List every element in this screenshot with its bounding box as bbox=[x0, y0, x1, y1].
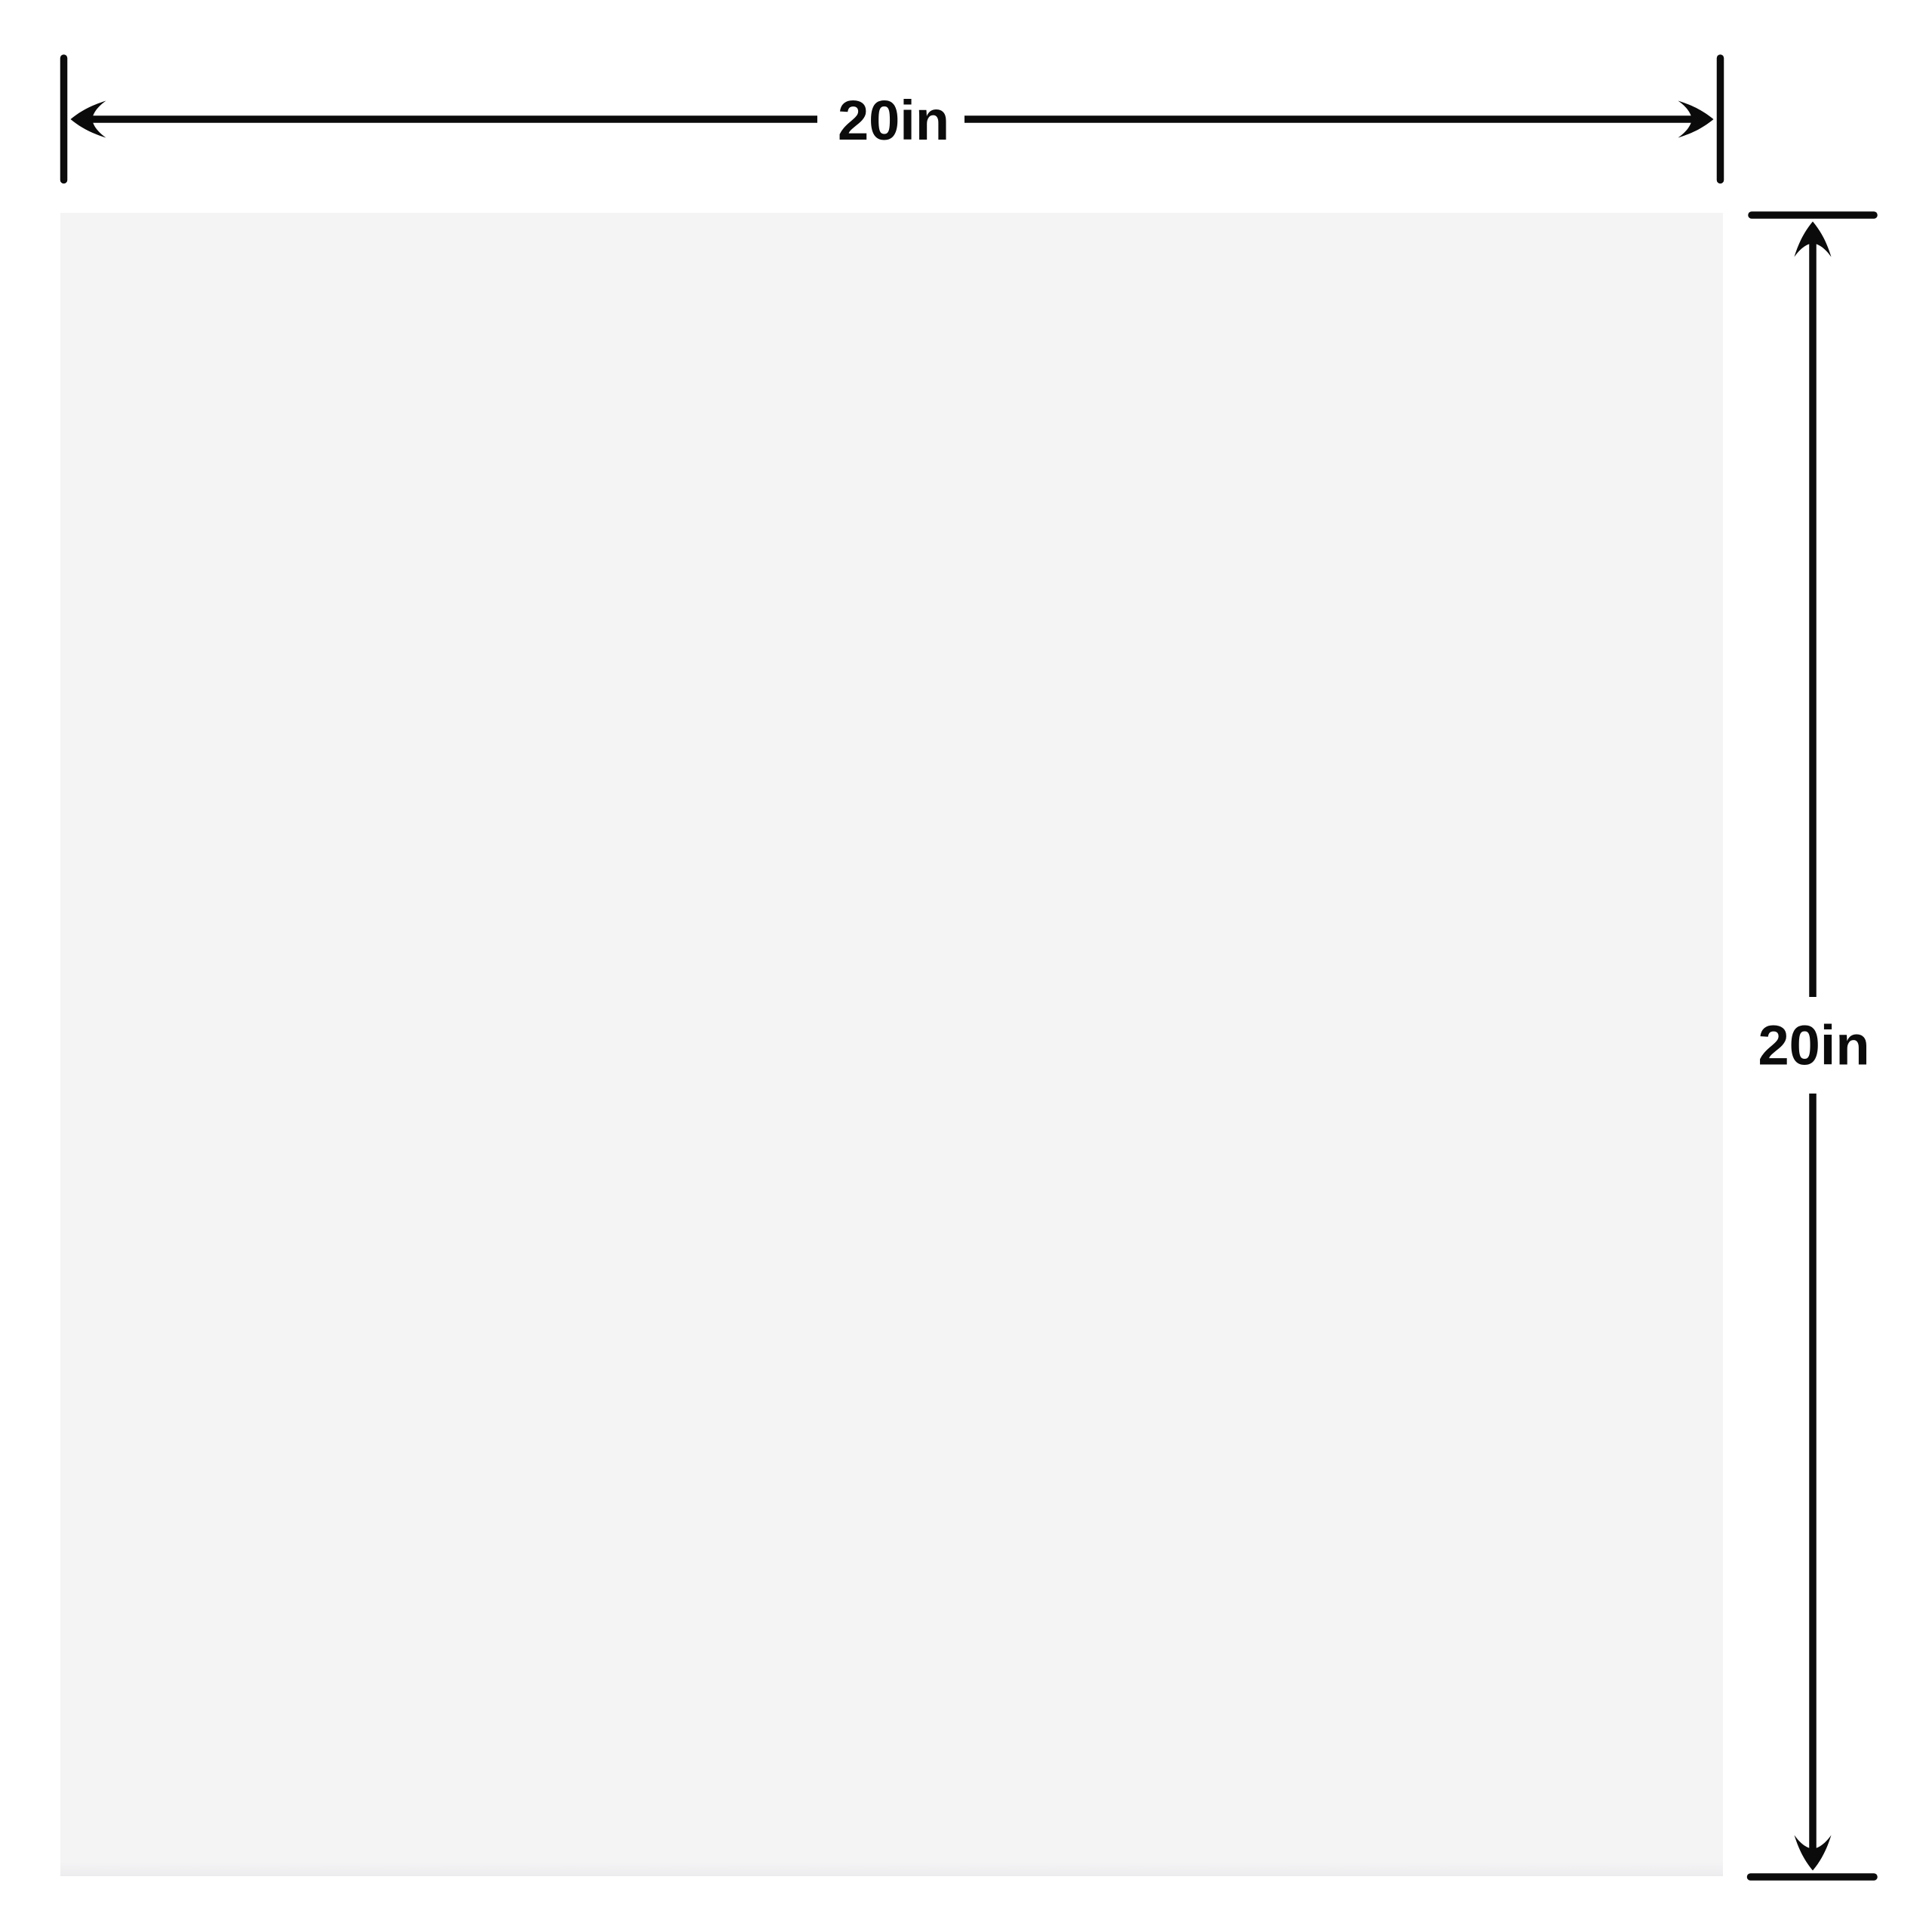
svg-text:20in: 20in bbox=[838, 89, 949, 152]
svg-text:20in: 20in bbox=[1758, 1014, 1869, 1077]
